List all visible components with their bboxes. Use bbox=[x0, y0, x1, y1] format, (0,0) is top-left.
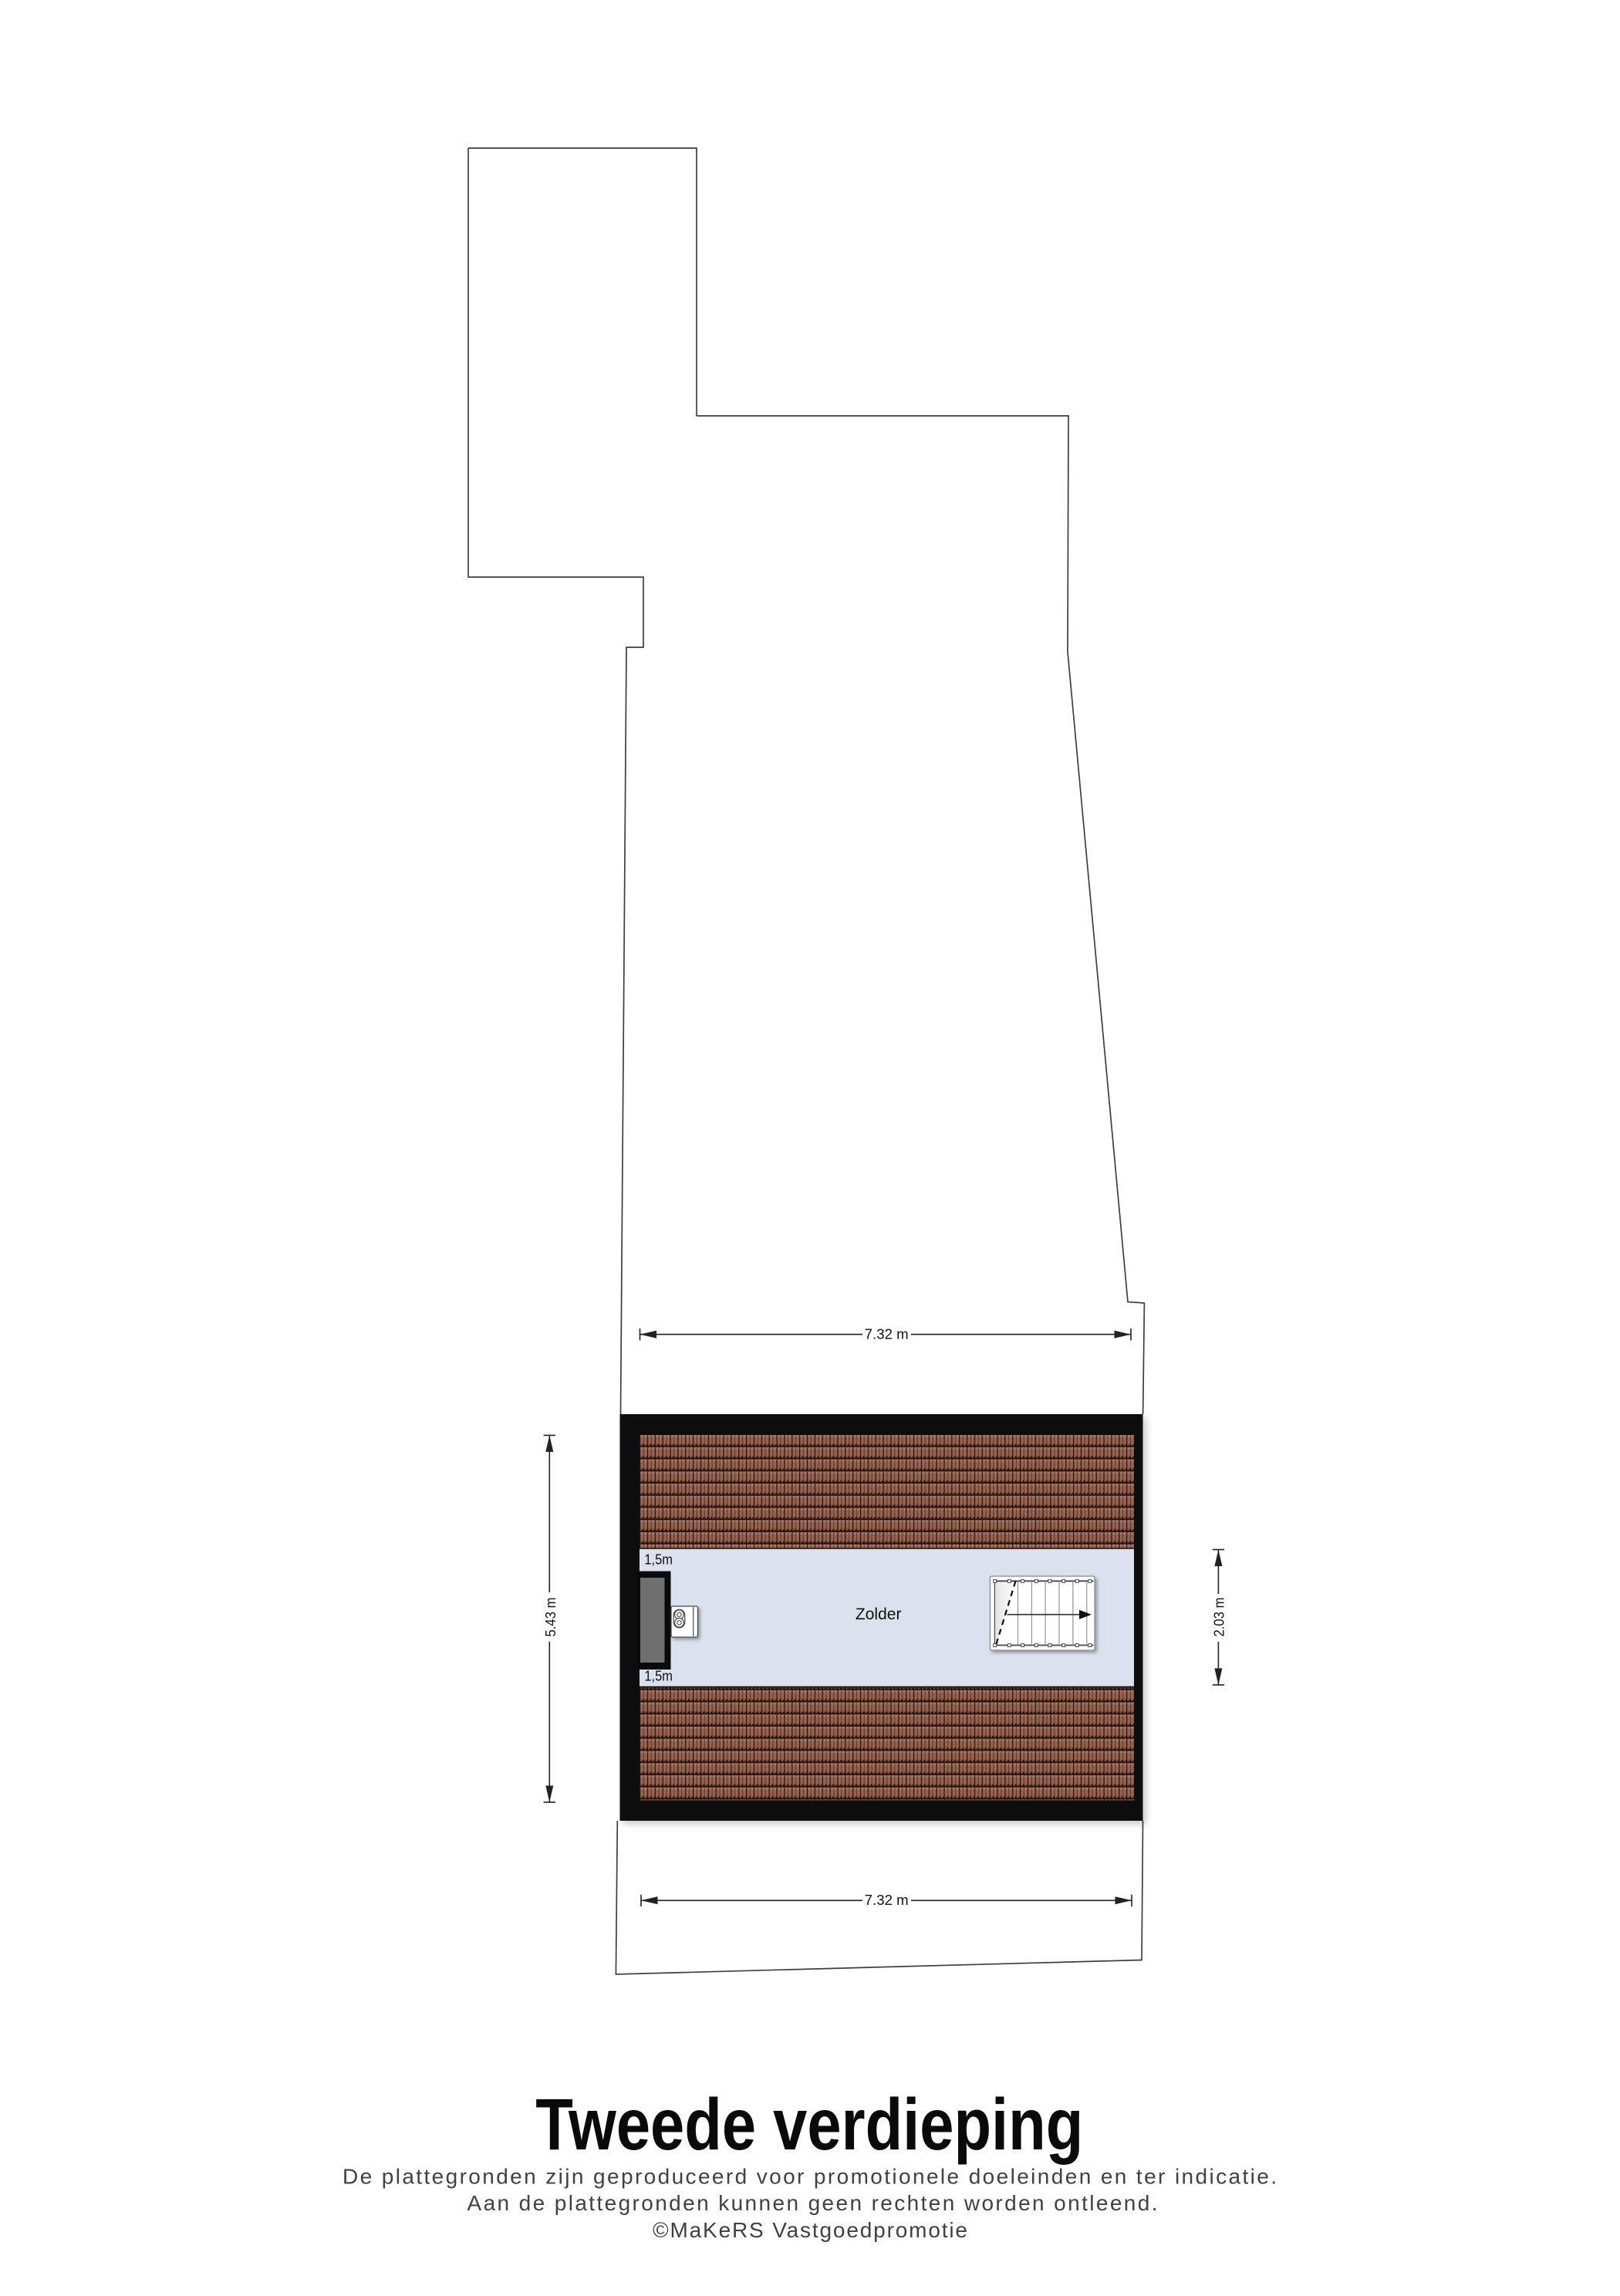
svg-text:5.43 m: 5.43 m bbox=[543, 1598, 559, 1637]
svg-text:7.32 m: 7.32 m bbox=[865, 1893, 909, 1908]
svg-text:7.32 m: 7.32 m bbox=[865, 1327, 909, 1342]
svg-text:2.03 m: 2.03 m bbox=[1211, 1598, 1227, 1637]
svg-text:©MaKeRS Vastgoedpromotie: ©MaKeRS Vastgoedpromotie bbox=[653, 2218, 967, 2242]
svg-text:1,5m: 1,5m bbox=[644, 1551, 673, 1567]
svg-text:Aan de plattegronden kunnen ge: Aan de plattegronden kunnen geen rechten… bbox=[467, 2191, 1158, 2215]
svg-text:1,5m: 1,5m bbox=[644, 1668, 673, 1683]
svg-text:Tweede verdieping: Tweede verdieping bbox=[535, 2084, 1083, 2166]
svg-text:De plattegronden zijn geproduc: De plattegronden zijn geproduceerd voor … bbox=[343, 2165, 1277, 2189]
svg-text:Zolder: Zolder bbox=[856, 1606, 902, 1623]
